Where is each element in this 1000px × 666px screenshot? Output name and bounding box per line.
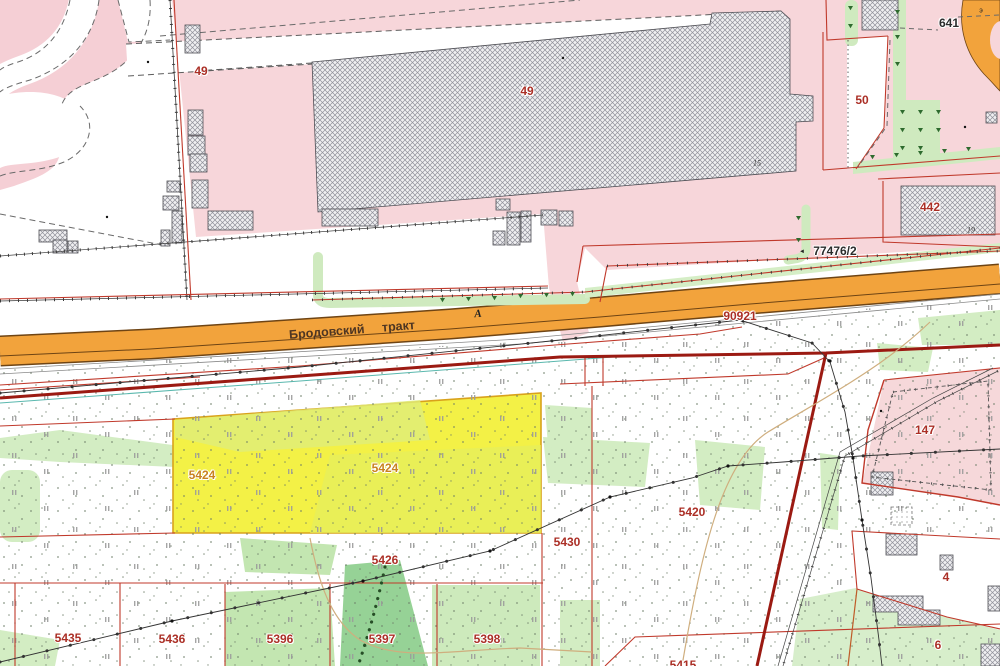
parcel-label-5420: 5420 xyxy=(679,505,706,519)
road-class-marker: А xyxy=(474,308,482,320)
parcel-label-5397: 5397 xyxy=(369,632,396,646)
parcel-label-442: 442 xyxy=(920,200,940,214)
parcel-label-147: 147 xyxy=(915,423,935,437)
map-labels: 49 49 641 50 442 19 15 77476/2 ◄ Бродовс… xyxy=(0,0,1000,666)
parcel-label-50: 50 xyxy=(855,93,868,107)
note-label-19: 19 xyxy=(967,226,975,235)
road-name-label: Бродовский тракт xyxy=(289,318,416,342)
parcel-label-5424-b: 5424 xyxy=(372,461,399,475)
parcel-label-4: 4 xyxy=(943,570,950,584)
parcel-label-49-west: 49 xyxy=(194,64,207,78)
note-label-e: э xyxy=(979,8,983,15)
parcel-label-5396: 5396 xyxy=(267,632,294,646)
parcel-label-5424-a: 5424 xyxy=(189,468,216,482)
parcel-label-5435: 5435 xyxy=(55,631,82,645)
note-label-15: 15 xyxy=(753,159,761,168)
parcel-label-5436: 5436 xyxy=(159,632,186,646)
parcel-label-77476-2: 77476/2 xyxy=(813,244,856,258)
parcel-label-5415: 5415 xyxy=(670,658,697,666)
cadastral-map-viewport[interactable]: 49 49 641 50 442 19 15 77476/2 ◄ Бродовс… xyxy=(0,0,1000,666)
pointer-icon: ◄ xyxy=(799,249,805,255)
parcel-label-5426: 5426 xyxy=(372,553,399,567)
parcel-label-90921: 90921 xyxy=(723,309,756,323)
parcel-label-5398: 5398 xyxy=(474,632,501,646)
parcel-label-5430: 5430 xyxy=(554,535,581,549)
parcel-label-641: 641 xyxy=(939,16,959,30)
building-label-49: 49 xyxy=(520,84,533,98)
parcel-label-6: 6 xyxy=(935,638,942,652)
